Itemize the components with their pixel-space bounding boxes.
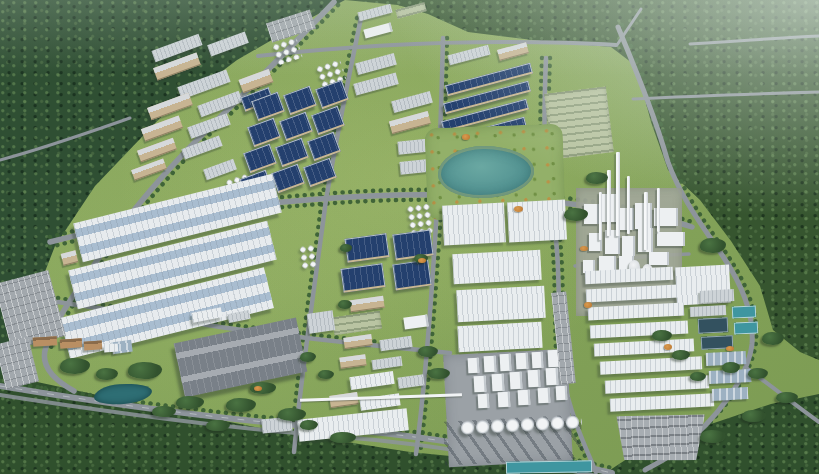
building	[397, 374, 424, 389]
plant-structure	[649, 252, 669, 265]
factory-blue	[271, 164, 304, 193]
tree-clump	[586, 172, 608, 184]
tree-clump	[748, 368, 768, 379]
building	[339, 354, 366, 369]
building	[131, 159, 167, 181]
autumn-tree	[254, 386, 262, 391]
stack	[627, 176, 630, 234]
process-tower	[528, 370, 541, 388]
building	[371, 356, 402, 370]
autumn-tree	[514, 206, 523, 212]
factory-blue	[275, 138, 308, 167]
building	[197, 91, 242, 117]
process-tower	[492, 374, 505, 392]
factory-blue	[311, 106, 344, 135]
aerial-industrial-park-render	[0, 0, 819, 474]
building	[181, 135, 222, 159]
process-tower	[538, 388, 551, 404]
building	[104, 344, 119, 353]
process-tower	[516, 353, 529, 370]
building	[497, 42, 529, 60]
warehouse-white	[610, 393, 715, 411]
greenhouse	[332, 311, 382, 336]
warehouse-white	[456, 286, 546, 323]
factory-blue	[341, 263, 386, 293]
stack	[607, 170, 611, 236]
warehouse-white	[457, 322, 542, 352]
stack	[644, 192, 648, 250]
greenhouse	[395, 2, 426, 18]
tree-clump	[60, 358, 90, 374]
dormitory	[84, 340, 103, 350]
building	[353, 73, 399, 96]
building	[357, 4, 392, 21]
process-tower	[510, 372, 523, 390]
building	[403, 314, 428, 329]
factory-blue	[283, 86, 316, 115]
building	[343, 334, 372, 349]
structures-layer	[0, 0, 819, 474]
building	[363, 23, 392, 39]
tree-clump	[176, 396, 204, 409]
building	[137, 138, 177, 162]
building	[61, 250, 78, 265]
building	[389, 111, 431, 134]
process-tower	[498, 392, 511, 408]
warehouse-white	[590, 320, 689, 338]
tree-clump	[776, 392, 798, 403]
building	[447, 45, 490, 66]
factory-blue	[303, 158, 336, 187]
tree-clump	[318, 370, 334, 379]
autumn-tree	[664, 344, 672, 350]
stack	[599, 192, 602, 240]
tree-clump	[742, 410, 766, 422]
stack	[657, 188, 660, 232]
building	[391, 91, 433, 113]
factory-blue	[243, 144, 276, 173]
process-tower	[546, 368, 559, 386]
building	[355, 53, 397, 75]
autumn-tree	[462, 134, 470, 140]
tree-clump	[96, 368, 118, 380]
dormitory	[33, 336, 58, 347]
building	[187, 113, 231, 139]
process-tower	[484, 356, 497, 373]
tree-clump	[700, 430, 726, 443]
canal	[506, 460, 592, 473]
process-tower	[478, 394, 490, 409]
treatment-basin	[734, 321, 759, 334]
factory-blue	[247, 118, 280, 147]
process-tower	[518, 390, 531, 406]
tree-clump	[300, 352, 316, 362]
process-tower	[500, 354, 512, 372]
treatment-basin-dark	[698, 317, 729, 334]
tree-clump	[152, 406, 176, 417]
factory-blue	[392, 260, 431, 291]
process-tower	[532, 352, 544, 369]
building	[379, 336, 412, 351]
tree-clump	[128, 362, 162, 379]
autumn-tree	[584, 302, 592, 308]
autumn-tree	[726, 346, 734, 351]
factory-blue	[307, 132, 340, 161]
building	[690, 305, 726, 317]
warehouse-white	[452, 250, 541, 285]
building	[207, 32, 249, 57]
process-tower	[474, 376, 487, 393]
autumn-tree	[580, 246, 588, 251]
tree-clump	[700, 238, 726, 253]
factory-blue	[279, 112, 312, 141]
building	[147, 93, 193, 120]
warehouse-dark	[174, 318, 308, 398]
building	[700, 289, 735, 303]
process-tower	[556, 386, 568, 401]
building	[141, 116, 183, 142]
building	[307, 310, 336, 333]
parking-east	[613, 412, 707, 465]
dormitory	[60, 338, 83, 349]
plant-structure	[657, 232, 685, 246]
tree-clump	[330, 432, 356, 443]
tree-clump	[206, 420, 230, 431]
pond	[93, 382, 152, 406]
tank-farm	[298, 244, 317, 270]
process-tower	[468, 358, 480, 374]
building-steel	[712, 387, 749, 401]
autumn-tree	[418, 258, 426, 263]
warehouse-white	[600, 356, 703, 374]
tree-clump	[762, 332, 784, 345]
plant-structure	[622, 236, 635, 256]
warehouse-white	[442, 202, 506, 245]
stack	[616, 152, 620, 236]
treatment-basin	[732, 305, 757, 318]
tree-clump	[418, 346, 438, 357]
tree-clump	[226, 398, 256, 412]
warehouse-white	[349, 371, 394, 390]
